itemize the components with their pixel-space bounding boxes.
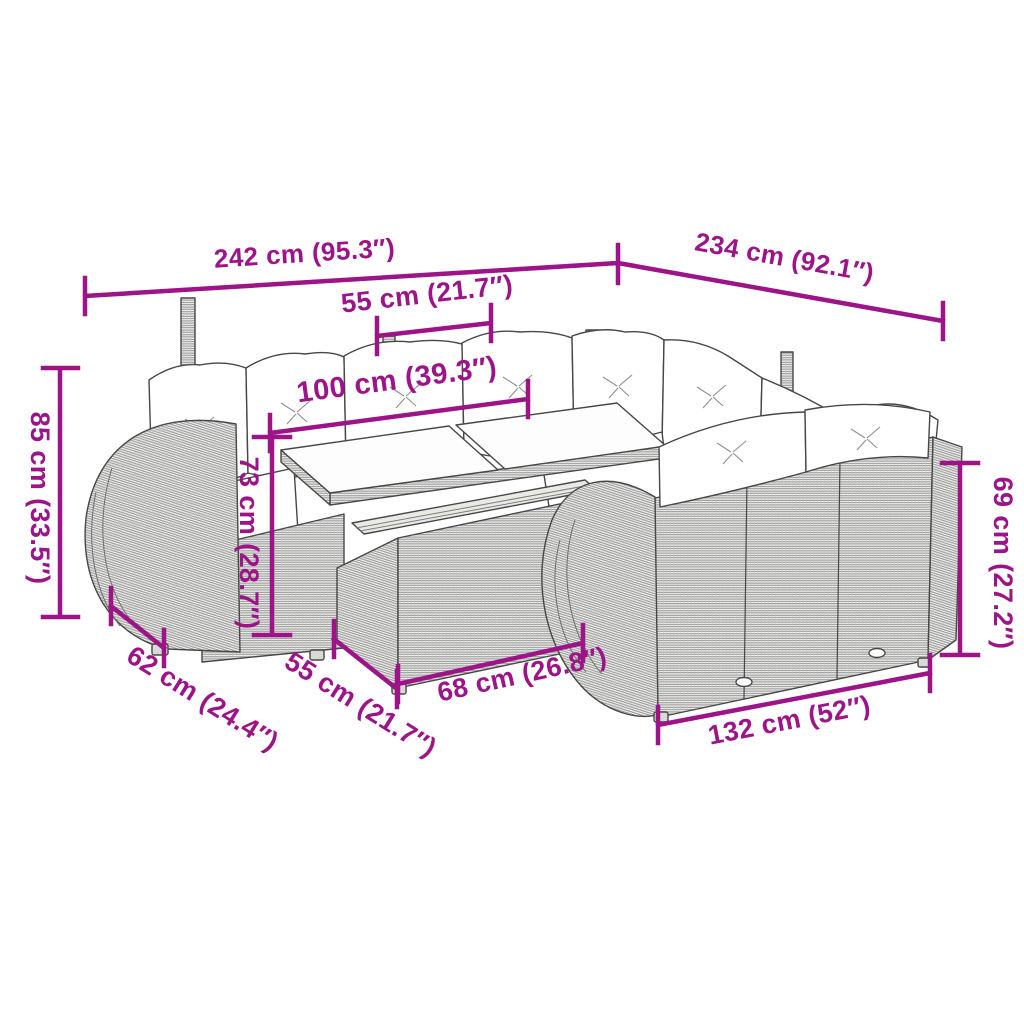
dimension-label: 242 cm (95.3″) — [213, 232, 396, 273]
dimension-234: 234 cm (92.1″) — [618, 226, 943, 339]
screw-cap — [736, 678, 752, 687]
dimension-line — [618, 263, 943, 339]
dimension-label: 234 cm (92.1″) — [693, 226, 877, 288]
diagram-canvas: 242 cm (95.3″) 234 cm (92.1″) 55 cm (21.… — [0, 0, 1024, 1024]
dimension-diagram: 242 cm (95.3″) 234 cm (92.1″) 55 cm (21.… — [0, 0, 1024, 1024]
dimension-85: 85 cm (33.5″) — [25, 368, 78, 617]
rounded-armrest — [85, 420, 240, 652]
dimension-label: 85 cm (33.5″) — [25, 412, 55, 585]
dimension-label: 73 cm (28.7″) — [234, 457, 264, 630]
sofa-right-arm — [928, 437, 962, 660]
dimension-label: 69 cm (27.2″) — [988, 477, 1018, 650]
screw-cap — [869, 649, 885, 658]
